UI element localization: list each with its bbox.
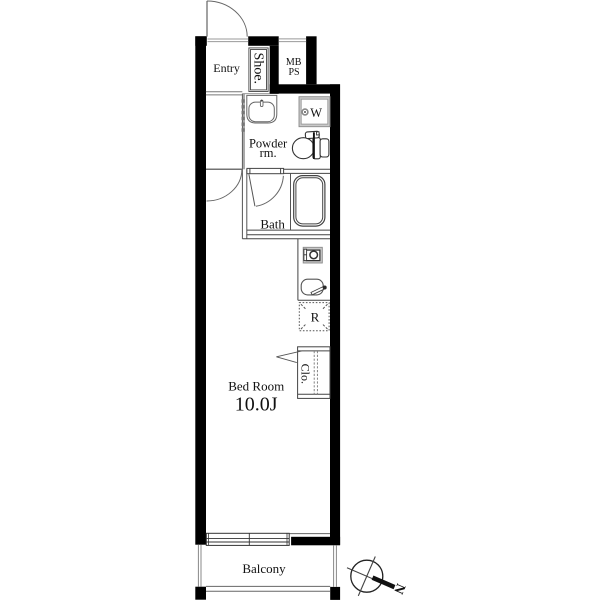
svg-text:rm.: rm. — [260, 146, 277, 160]
svg-text:W: W — [310, 106, 322, 120]
svg-text:Balcony: Balcony — [242, 561, 286, 576]
svg-text:PS: PS — [288, 67, 299, 78]
svg-text:10.0J: 10.0J — [235, 394, 278, 416]
svg-text:Bath: Bath — [260, 216, 285, 231]
svg-text:Bed Room: Bed Room — [228, 379, 284, 394]
svg-text:Shoe.: Shoe. — [250, 53, 265, 85]
svg-text:Entry: Entry — [213, 61, 240, 75]
svg-text:Clo.: Clo. — [299, 364, 313, 384]
svg-text:R: R — [311, 310, 320, 325]
